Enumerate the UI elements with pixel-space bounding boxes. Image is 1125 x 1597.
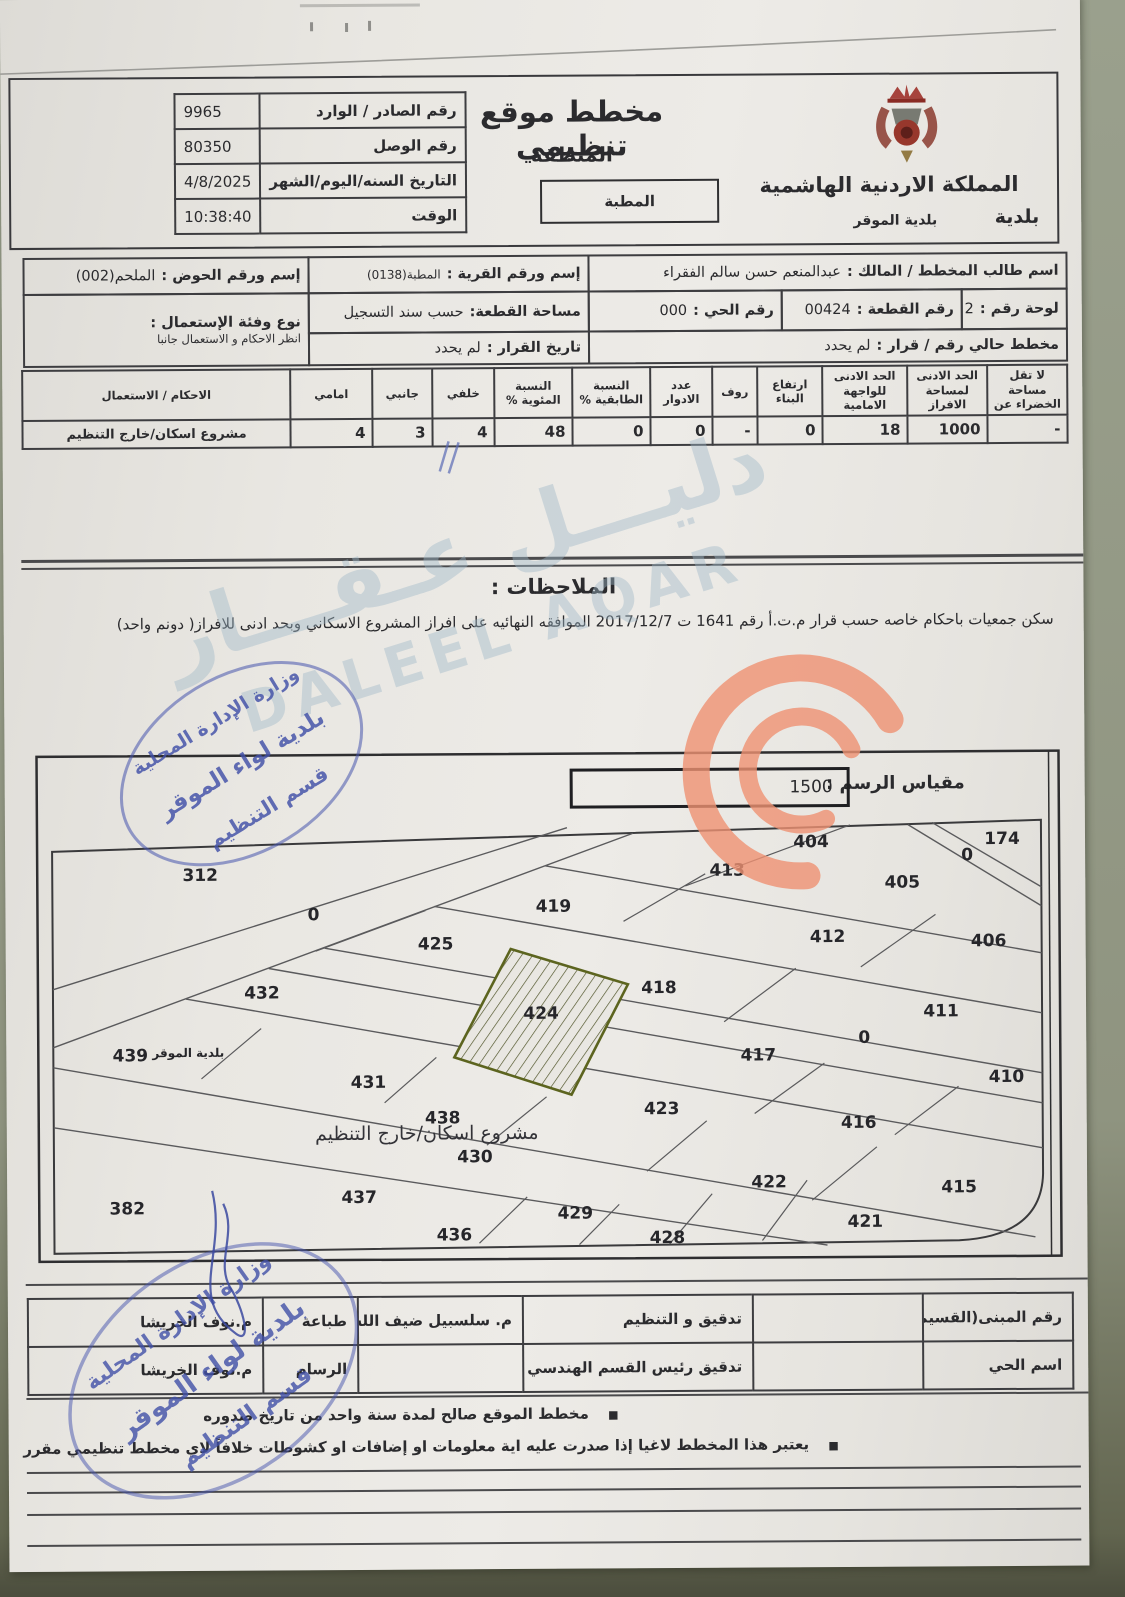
scanned-document-paper: رقم الصادر / الوارد 9965 رقم الوصل 80350…	[0, 0, 1089, 1572]
overlay-layer: دليـــل عـقـــار DALEEL AQAR وزارة الإدا…	[0, 0, 1089, 1572]
sleeve-edge	[0, 30, 1056, 74]
stamp-line2: بلدية لواء الموقر	[154, 704, 329, 825]
daleel-aqar-logo-icon	[669, 641, 929, 900]
pen-mark	[440, 441, 459, 473]
